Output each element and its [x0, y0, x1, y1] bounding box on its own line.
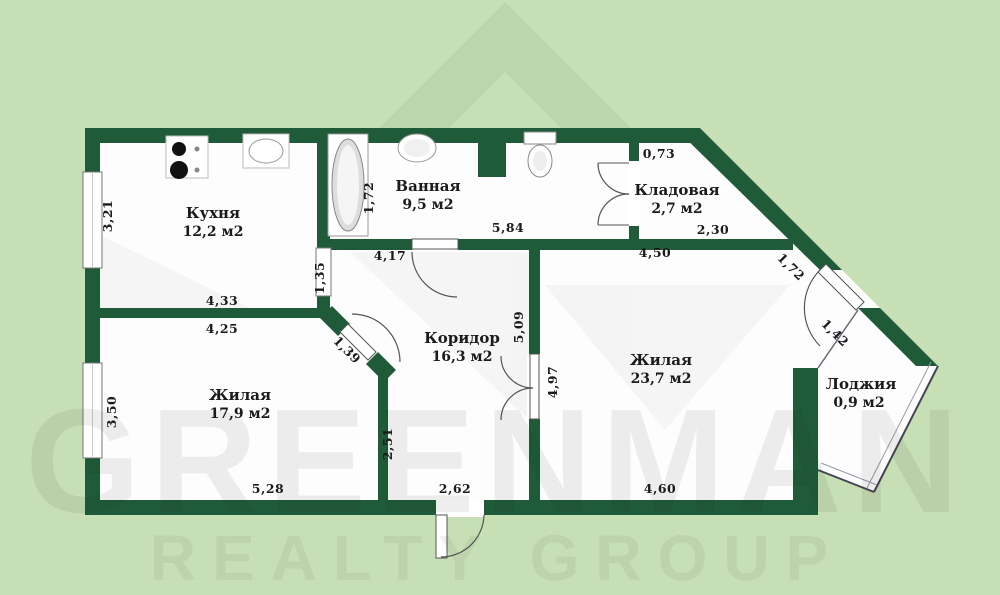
toilet-bowl-inner [533, 151, 547, 171]
dim-bath-bottom: 5,84 [492, 220, 524, 235]
dim-corridor-right: 5,09 [511, 311, 526, 343]
floorplan-page: Кухня 12,2 м2 Ванная 9,5 м2 Кладовая 2,7… [0, 0, 1000, 595]
bath-sink-bowl [404, 139, 430, 157]
room-label-bathroom: Ванная [395, 177, 460, 195]
room-area-corridor: 16,3 м2 [432, 349, 493, 365]
dim-kitchen-bottom: 4,33 [206, 293, 238, 308]
bathtub-inner [337, 145, 359, 225]
dim-bath-left: 1,72 [361, 182, 376, 214]
stove-knob [195, 168, 200, 173]
stove-burner [170, 161, 188, 179]
wall-bath-pillar [478, 141, 506, 177]
room-label-living2: Жилая [630, 351, 692, 369]
dim-storage-bottom: 2,30 [697, 222, 729, 237]
room-label-kitchen: Кухня [186, 204, 240, 222]
toilet-icon [524, 132, 556, 144]
dim-living1-top: 4,25 [206, 321, 238, 336]
floorplan-canvas: Кухня 12,2 м2 Ванная 9,5 м2 Кладовая 2,7… [0, 0, 1000, 595]
room-label-storage: Кладовая [634, 181, 719, 199]
watermark-tagline-text: REALTY GROUP [150, 522, 845, 594]
dim-kitchen-right: 1,35 [312, 262, 327, 294]
stove-burner [172, 142, 186, 156]
room-area-storage: 2,7 м2 [651, 201, 702, 217]
watermark-brand-text: GREENMAN [25, 379, 968, 544]
room-area-kitchen: 12,2 м2 [183, 224, 244, 240]
dim-storage-top: 0,73 [643, 146, 675, 161]
stove-knob [195, 147, 200, 152]
room-label-corridor: Коридор [424, 329, 500, 347]
room-area-bathroom: 9,5 м2 [402, 197, 453, 213]
bathroom-door-leaf [412, 239, 458, 249]
kitchen-sink-bowl [249, 139, 283, 163]
wall-kitchen-bottom [85, 308, 330, 318]
dim-kitchen-left: 3,21 [100, 200, 115, 232]
dim-bath-door-wall: 4,17 [374, 248, 406, 263]
dim-living2-top: 4,50 [639, 245, 671, 260]
